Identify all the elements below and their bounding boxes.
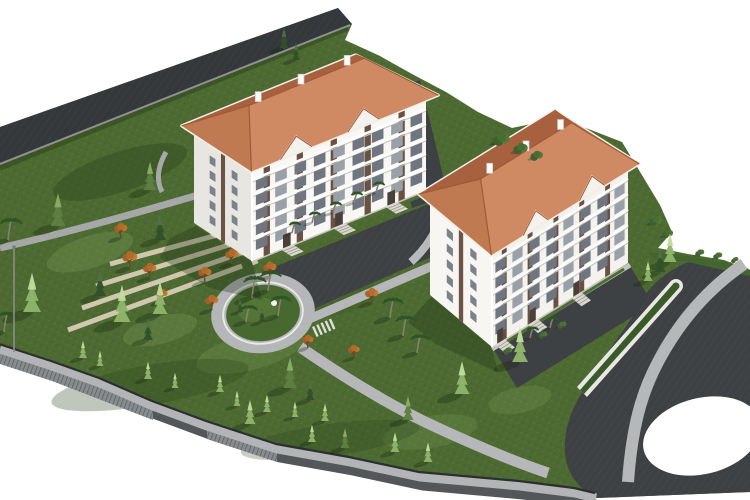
chimney — [255, 92, 261, 102]
chimney — [487, 163, 493, 173]
orange-foliage — [117, 223, 124, 230]
orange-foliage — [208, 295, 215, 302]
bush-foliage — [541, 332, 546, 337]
orange-foliage — [201, 267, 208, 274]
bush-foliage — [716, 253, 721, 258]
chimney — [344, 55, 350, 65]
bush-foliage — [698, 250, 703, 255]
site-plan-3d-render — [0, 0, 750, 500]
orange-foliage — [351, 345, 357, 351]
bush-foliage — [498, 133, 507, 142]
bush-foliage — [506, 348, 511, 353]
orange-foliage — [266, 262, 273, 269]
orange-foliage — [368, 288, 375, 295]
architectural-site-render — [0, 0, 750, 500]
street-light-head — [12, 245, 15, 248]
median-green-cap — [673, 283, 680, 290]
bush-foliage — [733, 257, 737, 261]
chimney — [298, 74, 304, 84]
bush-foliage — [653, 216, 660, 223]
bush-foliage — [560, 322, 565, 327]
orange-foliage — [305, 335, 311, 341]
bush-foliage — [517, 143, 525, 151]
orange-foliage — [228, 249, 235, 256]
gable-accent-strip — [221, 145, 225, 244]
orange-foliage — [146, 263, 153, 270]
gable-accent-strip — [459, 219, 463, 323]
chimney — [558, 120, 564, 130]
orange-foliage — [126, 251, 134, 259]
bush-foliage — [534, 151, 541, 158]
